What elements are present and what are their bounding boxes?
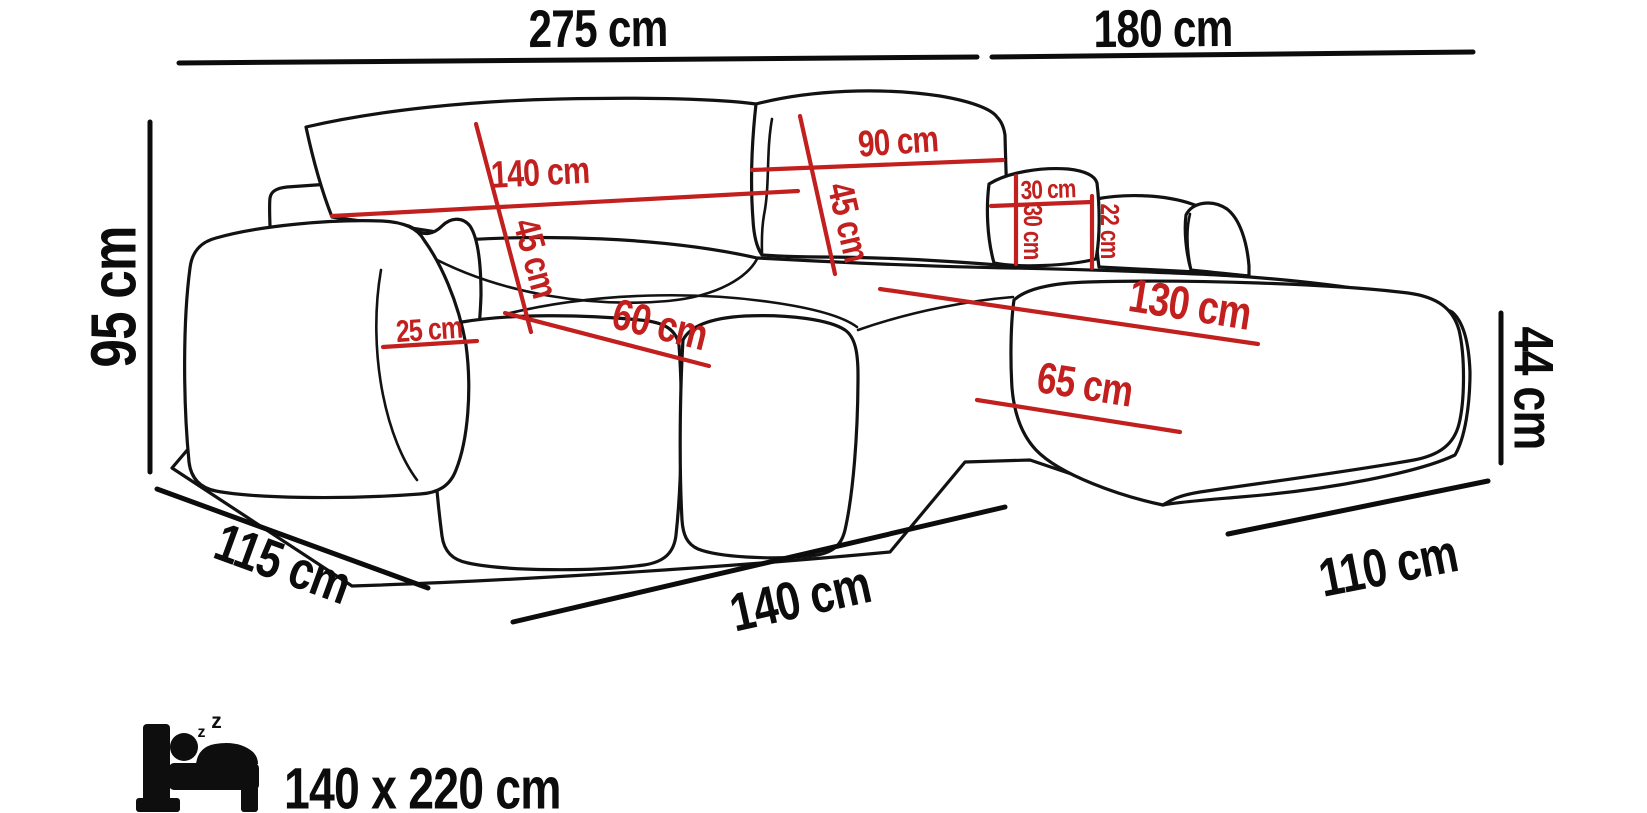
pillow-width-label: 30 cm: [1020, 174, 1076, 205]
side-back-height-label: 22 cm: [1095, 204, 1124, 259]
diagram-canvas: 140 cm 45 cm 90 cm 45 cm 30 cm 30 cm 22 …: [0, 0, 1647, 813]
bed-headboard-foot: [136, 798, 180, 812]
sleep-z-small: z: [198, 724, 206, 741]
left-armrest: [185, 221, 469, 498]
seat-cushion-right: [680, 316, 858, 558]
seat-cushion-left: [431, 316, 681, 570]
bed-icon: z z: [136, 710, 259, 812]
sleeping-size-label: 140 x 220 cm: [284, 756, 561, 813]
chaise-front-width-label: 110 cm: [1314, 524, 1462, 609]
bed-mattress: [169, 763, 259, 790]
sleeper-blanket: [196, 743, 258, 764]
sleep-z-big: z: [211, 710, 221, 733]
right-armrest: [1185, 203, 1249, 276]
overall-width-right-label: 180 cm: [1093, 0, 1232, 59]
overall-width-left-label: 275 cm: [528, 0, 667, 59]
sleeper-head: [170, 733, 198, 761]
sofa-dimensions-diagram: 140 cm 45 cm 90 cm 45 cm 30 cm 30 cm 22 …: [0, 0, 1647, 813]
backrest-left-width-label: 140 cm: [490, 150, 590, 197]
backrest-right-width-label: 90 cm: [857, 119, 940, 165]
seat-height-label: 44 cm: [1502, 326, 1565, 449]
sleeping-function: z z 140 x 220 cm: [136, 710, 561, 813]
pillow-height-label: 30 cm: [1018, 205, 1047, 260]
bed-leg: [241, 786, 258, 812]
armrest-width-label: 25 cm: [395, 310, 464, 349]
overall-height-label: 95 cm: [79, 226, 150, 367]
backrest-right: [752, 91, 1010, 266]
